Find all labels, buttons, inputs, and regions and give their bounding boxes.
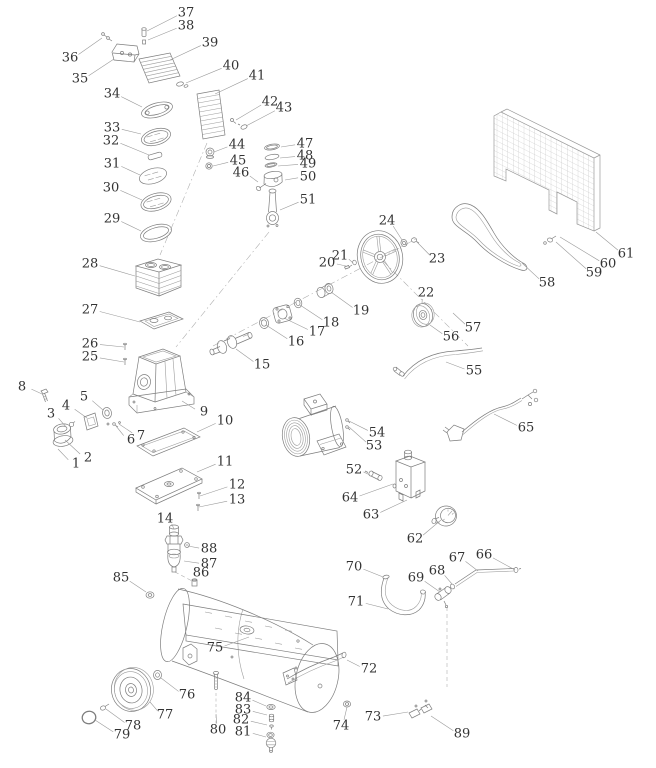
part-label-12: 12	[229, 478, 246, 493]
leader-line-88	[188, 546, 199, 548]
part-41-cylinder	[197, 90, 225, 139]
part-label-76: 76	[179, 688, 196, 703]
part-66-67-pipe	[439, 567, 521, 590]
leader-line-64	[360, 484, 393, 496]
part-31-valve-plate	[137, 165, 168, 187]
part-label-21: 21	[332, 249, 349, 264]
leader-line-23	[416, 241, 429, 255]
part-label-10: 10	[217, 414, 234, 429]
leader-line-49	[278, 164, 298, 166]
leader-line-89	[431, 716, 453, 731]
leader-line-10	[197, 423, 216, 432]
leader-line-67	[466, 561, 478, 571]
part-label-31: 31	[104, 157, 121, 172]
part-16-bearing	[258, 317, 269, 330]
part-label-56: 56	[443, 330, 460, 345]
leader-line-16	[266, 325, 287, 339]
part-label-23: 23	[429, 252, 446, 267]
part-46-50-piston	[255, 170, 282, 191]
leader-line-40	[186, 68, 222, 83]
part-label-32: 32	[103, 134, 120, 149]
part-label-65: 65	[518, 421, 535, 436]
part-label-80: 80	[210, 723, 227, 738]
leader-line-8	[31, 389, 42, 394]
part-47-48-49-piston-rings	[264, 143, 280, 168]
leader-line-12	[200, 487, 227, 496]
part-label-30: 30	[103, 181, 120, 196]
part-36-screws	[102, 33, 112, 41]
part-label-18: 18	[323, 316, 340, 331]
leader-line-29	[121, 221, 141, 231]
leader-line-34	[121, 97, 142, 107]
leader-line-60	[560, 237, 599, 261]
part-label-19: 19	[353, 304, 370, 319]
part-74-ring	[343, 701, 350, 707]
part-label-38: 38	[178, 19, 195, 34]
leader-line-48	[280, 157, 295, 158]
part-8-bolt	[41, 389, 48, 402]
leader-line-69	[425, 581, 440, 592]
part-27-gasket	[140, 312, 183, 329]
part-label-87: 87	[201, 557, 218, 572]
leader-line-35	[89, 59, 114, 76]
part-22-pulley	[409, 301, 437, 329]
part-label-64: 64	[342, 491, 359, 506]
leader-line-83	[253, 711, 267, 715]
part-85-nut	[146, 592, 154, 598]
leader-line-53	[349, 427, 366, 442]
leader-line-38	[148, 28, 177, 40]
leader-line-59	[556, 242, 586, 269]
part-14-regulator	[165, 525, 189, 572]
part-label-35: 35	[72, 72, 89, 87]
leader-line-1	[58, 449, 68, 460]
leader-line-57	[453, 313, 465, 324]
leader-line-2	[65, 440, 80, 454]
leader-line-7	[119, 424, 132, 433]
part-label-22: 22	[418, 286, 435, 301]
part-73-89-drain	[409, 700, 432, 718]
part-label-66: 66	[476, 548, 493, 563]
part-label-29: 29	[104, 212, 121, 227]
part-79-oring	[81, 710, 97, 725]
part-label-70: 70	[346, 560, 363, 575]
leader-line-39	[170, 46, 201, 60]
part-label-5: 5	[80, 390, 88, 405]
leader-line-70	[363, 569, 383, 577]
part-label-7: 7	[137, 429, 145, 444]
leader-line-17	[284, 318, 308, 329]
part-label-3: 3	[47, 407, 55, 422]
part-label-13: 13	[229, 493, 246, 508]
part-label-36: 36	[62, 51, 79, 66]
leader-line-50	[285, 178, 298, 180]
part-label-24: 24	[379, 214, 396, 229]
part-label-25: 25	[82, 350, 99, 365]
leader-line-58	[522, 263, 539, 279]
part-label-6: 6	[127, 433, 135, 448]
leader-line-21	[349, 259, 353, 263]
part-label-63: 63	[363, 508, 380, 523]
part-label-44: 44	[229, 138, 246, 153]
part-30-valve-plate	[139, 190, 173, 215]
part-label-72: 72	[361, 662, 378, 677]
leader-line-82	[251, 721, 267, 725]
part-label-11: 11	[217, 455, 234, 470]
leader-line-11	[197, 464, 216, 472]
part-76-washer	[154, 670, 162, 679]
part-label-77: 77	[157, 708, 174, 723]
part-label-71: 71	[348, 595, 365, 610]
part-label-54: 54	[369, 426, 386, 441]
part-33-valve-plate	[139, 125, 172, 149]
part-label-39: 39	[202, 36, 219, 51]
part-label-51: 51	[300, 193, 317, 208]
part-label-50: 50	[300, 170, 317, 185]
leader-line-55	[446, 362, 464, 369]
part-35-air-filter	[112, 44, 139, 62]
part-label-46: 46	[233, 166, 250, 181]
leader-line-44	[214, 147, 227, 152]
leader-line-33	[122, 129, 141, 134]
part-label-15: 15	[254, 358, 271, 373]
leader-line-46	[250, 176, 258, 182]
exploded-parts-diagram: 1234567891011121314151617181920212223242…	[0, 0, 656, 768]
leader-line-37	[147, 16, 177, 31]
part-9-crankcase	[129, 349, 194, 413]
part-label-28: 28	[82, 257, 99, 272]
part-4-bracket	[84, 413, 98, 430]
part-5-ring	[102, 407, 113, 425]
leader-line-78	[106, 709, 125, 723]
leader-line-51	[280, 202, 299, 210]
part-15-crankshaft	[209, 332, 253, 356]
leader-line-84	[252, 700, 266, 706]
part-label-8: 8	[18, 380, 26, 395]
part-10-gasket	[137, 428, 200, 456]
part-label-79: 79	[114, 728, 131, 743]
part-motor	[279, 394, 346, 459]
part-label-41: 41	[249, 69, 266, 84]
leader-line-27	[100, 312, 140, 322]
part-37-38-screw	[142, 28, 146, 44]
leader-line-32	[120, 143, 149, 155]
leader-line-6	[116, 426, 124, 436]
part-63-64-pressure-switch	[393, 450, 425, 501]
part-label-67: 67	[449, 551, 466, 566]
leader-line-9	[182, 401, 195, 409]
part-label-53: 53	[366, 439, 383, 454]
part-39-head-cover	[139, 53, 180, 83]
part-label-57: 57	[465, 321, 482, 336]
leader-line-45	[213, 162, 228, 166]
leader-line-63	[380, 500, 407, 513]
part-52-fitting	[365, 470, 383, 481]
leader-line-54	[349, 421, 368, 430]
part-28-cylinder-block	[136, 259, 181, 296]
part-label-89: 89	[454, 727, 471, 742]
part-label-43: 43	[276, 101, 293, 116]
part-label-1: 1	[72, 457, 80, 472]
part-34-gasket	[140, 99, 175, 121]
leader-line-42	[236, 105, 261, 120]
leader-line-5	[92, 401, 103, 410]
part-label-88: 88	[201, 542, 218, 557]
leader-line-65	[494, 414, 517, 425]
leader-line-68	[445, 575, 452, 584]
part-number-labels: 1234567891011121314151617181920212223242…	[18, 6, 634, 743]
leader-line-73	[383, 712, 408, 716]
leader-line-15	[236, 349, 253, 362]
leader-line-25	[100, 358, 124, 362]
part-label-9: 9	[200, 405, 208, 420]
part-label-73: 73	[365, 710, 382, 725]
part-label-75: 75	[207, 641, 224, 656]
part-label-14: 14	[157, 512, 174, 527]
part-label-85: 85	[113, 571, 130, 586]
part-label-2: 2	[84, 451, 92, 466]
part-label-16: 16	[288, 335, 305, 350]
part-75-platform	[183, 604, 338, 669]
part-68-69-check-valve	[434, 583, 456, 607]
part-77-wheel	[108, 664, 157, 714]
part-label-58: 58	[539, 276, 556, 291]
leader-line-18	[300, 305, 322, 320]
part-label-69: 69	[408, 571, 425, 586]
leader-line-20	[337, 264, 346, 266]
part-11-base-plate	[136, 468, 202, 504]
part-53-54-bolts	[346, 419, 350, 430]
part-51-connecting-rod	[267, 189, 279, 227]
leader-line-56	[430, 325, 442, 334]
leader-line-87	[184, 561, 199, 563]
part-label-26: 26	[82, 337, 99, 352]
part-32-reed-valve	[148, 152, 163, 161]
leader-line-19	[331, 292, 353, 308]
part-44-45-nuts	[206, 148, 214, 169]
leader-line-85	[130, 581, 146, 592]
part-label-61: 61	[618, 247, 635, 262]
part-58-belt	[452, 204, 527, 271]
part-61-belt-guard	[494, 109, 600, 231]
leader-line-36	[78, 38, 102, 55]
part-label-40: 40	[223, 59, 240, 74]
leader-line-72	[347, 660, 360, 667]
leader-line-47	[281, 145, 295, 147]
leader-line-41	[215, 79, 248, 94]
part-1-2-3-oil-cap	[52, 422, 75, 448]
part-12-13-screws	[197, 492, 201, 511]
leader-line-4	[75, 409, 87, 418]
part-62-gauge	[431, 504, 458, 527]
part-40-fitting	[176, 81, 188, 88]
part-label-62: 62	[407, 532, 424, 547]
part-label-4: 4	[62, 399, 70, 414]
part-label-68: 68	[429, 564, 446, 579]
part-label-60: 60	[600, 257, 617, 272]
part-label-34: 34	[104, 87, 121, 102]
leader-line-28	[100, 266, 135, 276]
part-label-74: 74	[333, 719, 350, 734]
part-42-43-screw	[231, 119, 248, 131]
part-label-55: 55	[466, 364, 483, 379]
part-label-84: 84	[235, 691, 252, 706]
part-81-82-83-84-safety-valve-stack	[266, 704, 276, 752]
leader-line-79	[95, 720, 113, 732]
leader-line-13	[199, 501, 227, 507]
part-label-33: 33	[104, 121, 121, 136]
part-29-gasket	[138, 221, 173, 245]
part-label-52: 52	[346, 463, 363, 478]
leader-line-30	[120, 190, 142, 200]
leader-line-43	[246, 111, 275, 126]
part-label-27: 27	[82, 303, 99, 318]
leader-line-26	[100, 345, 124, 347]
part-flywheel	[352, 226, 408, 288]
leader-line-31	[121, 166, 140, 175]
leader-line-81	[253, 733, 266, 737]
part-59-60-bolt	[544, 236, 556, 244]
part-axle-bracket	[183, 644, 197, 665]
leader-line-61	[596, 232, 618, 250]
leader-line-76	[161, 678, 179, 691]
leader-line-66	[493, 558, 515, 570]
